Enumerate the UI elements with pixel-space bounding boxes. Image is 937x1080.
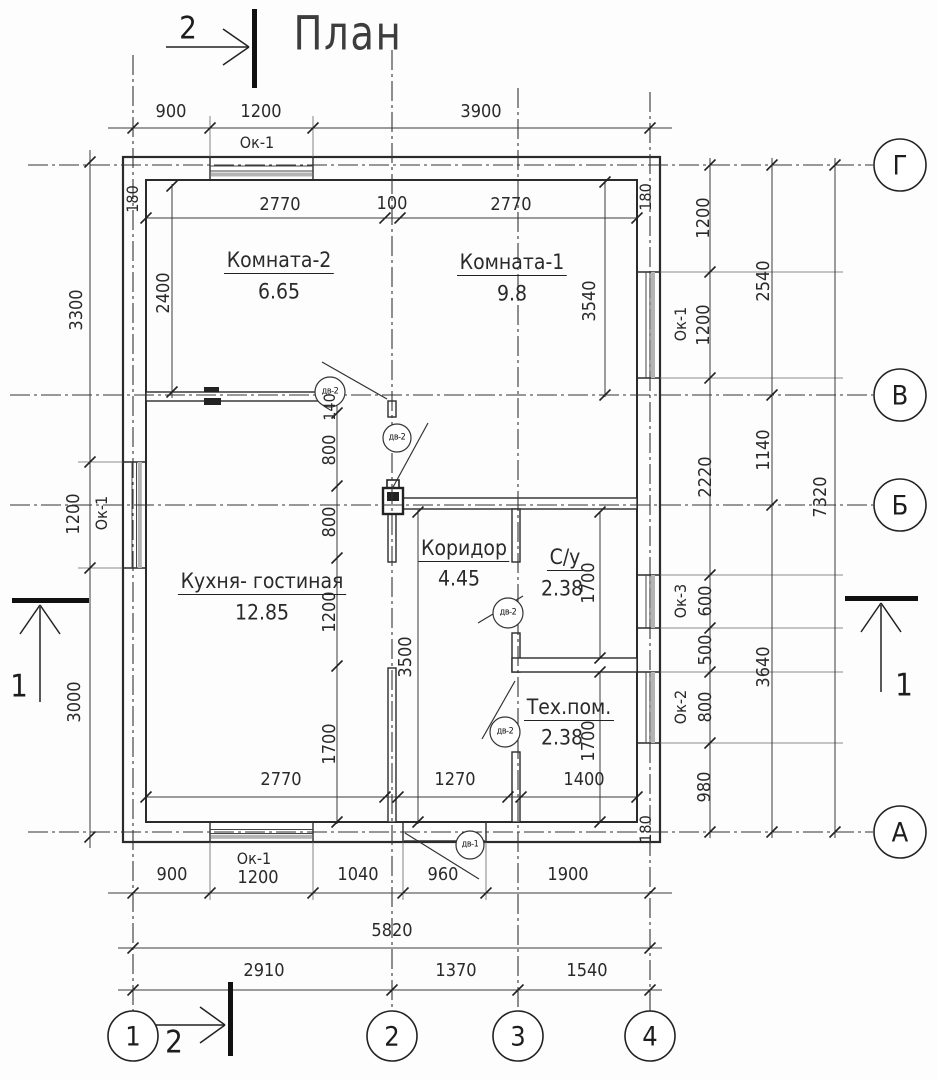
- dim-right-1140: 1140: [755, 429, 773, 470]
- axis-label-v: В: [892, 383, 909, 410]
- dim-left-1200: 1200: [65, 493, 83, 534]
- dim-wall-right-180: 180: [638, 183, 654, 210]
- dim-mid-1700: 1700: [321, 723, 339, 764]
- dim-wall-left-180: 180: [125, 185, 141, 212]
- dim-wall-bottomright-180: 180: [638, 815, 654, 842]
- dim-bot-1200: 1200: [237, 869, 278, 887]
- window-tag-bottom-ok1: Ок-1: [237, 851, 271, 867]
- dim-left-3000: 3000: [66, 681, 84, 722]
- window-tag-right-ok2: Ок-2: [673, 690, 689, 724]
- axis-label-a: А: [892, 820, 909, 847]
- dim-bot-1900: 1900: [547, 866, 588, 884]
- dim-wall-100: 100: [377, 195, 408, 213]
- dim-mid-140: 140: [322, 393, 338, 420]
- dim-right-1200a: 1200: [695, 197, 713, 238]
- dim-bot-900: 900: [157, 866, 188, 884]
- dim-bot-1040: 1040: [337, 866, 378, 884]
- dim-bot-960: 960: [428, 866, 459, 884]
- dim-inner-2770-komnata1: 2770: [490, 196, 531, 214]
- room-area-komnata1: 9.8: [497, 284, 527, 305]
- section-mark-bottom: 2: [165, 1028, 183, 1059]
- door-tag-dv2-b: дв-2: [389, 434, 406, 443]
- window-tag-right-ok1: Ок-1: [673, 307, 689, 341]
- axis-label-g: Г: [893, 153, 908, 180]
- dim-bot-1370: 1370: [435, 962, 476, 980]
- section-mark-right: 1: [895, 671, 913, 702]
- dim-top-900: 900: [156, 103, 187, 121]
- axis-label-1: 1: [125, 1024, 140, 1051]
- room-name-komnata2: Комната-2: [224, 250, 334, 274]
- door-swings: [322, 362, 523, 879]
- dim-right-800: 800: [697, 692, 715, 723]
- dim-inner-2400: 2400: [155, 272, 173, 313]
- room-name-teh: Тех.пом.: [524, 697, 614, 721]
- dim-left-3300: 3300: [68, 289, 86, 330]
- dim-bot-5820: 5820: [371, 922, 412, 940]
- room-name-koridor: Коридор: [418, 538, 509, 562]
- room-area-teh: 2.38: [541, 728, 583, 749]
- axis-label-2: 2: [384, 1024, 399, 1051]
- dim-inner-1270: 1270: [434, 771, 475, 789]
- dim-inner-2770-komnata2: 2770: [259, 196, 300, 214]
- dim-mid-800a: 800: [321, 435, 339, 466]
- section-mark-top: 2: [179, 14, 197, 45]
- room-area-kitchen: 12.85: [235, 603, 289, 624]
- window-tag-top-ok1: Ок-1: [240, 135, 274, 151]
- door-tag-circles: [315, 377, 523, 859]
- door-tag-dv2-c: дв-2: [500, 609, 517, 618]
- dim-inner-2770-kitchen: 2770: [260, 771, 301, 789]
- dim-right-980: 980: [696, 772, 714, 803]
- window-tag-left-ok1: Ок-1: [94, 496, 110, 530]
- dim-right-3640: 3640: [755, 646, 773, 687]
- dim-mid-800b: 800: [321, 507, 339, 538]
- room-area-komnata2: 6.65: [258, 282, 300, 303]
- dim-right-7320: 7320: [812, 476, 830, 517]
- dim-bot-2910: 2910: [243, 962, 284, 980]
- dim-komnata1-3540: 3540: [581, 280, 599, 321]
- dim-inner-1400: 1400: [563, 771, 604, 789]
- dim-bot-1540: 1540: [566, 962, 607, 980]
- axis-label-3: 3: [510, 1024, 525, 1051]
- dim-mid-1200: 1200: [321, 591, 339, 632]
- room-area-su: 2.38: [541, 579, 583, 600]
- drawing-title: План: [294, 11, 403, 58]
- axis-label-b: Б: [892, 493, 909, 520]
- section-mark-left: 1: [10, 672, 28, 703]
- dim-right-600: 600: [697, 586, 715, 617]
- dim-top-1200: 1200: [240, 103, 281, 121]
- dim-su-1700: 1700: [580, 562, 598, 603]
- door-tag-dv1: дв-1: [462, 841, 479, 850]
- room-name-komnata1: Комната-1: [457, 252, 567, 276]
- section-arrows: [12, 9, 918, 1056]
- dim-top-3900: 3900: [460, 103, 501, 121]
- floor-plan-sheet: План 2 2 1 1 1 2 3 4 Г В Б А Комната-2 6…: [0, 0, 937, 1080]
- door-tag-dv2-d: дв-2: [497, 728, 514, 737]
- dim-koridor-3500: 3500: [397, 636, 415, 677]
- dim-right-2220: 2220: [697, 456, 715, 497]
- window-tag-right-ok3: Ок-3: [673, 584, 689, 618]
- dim-right-2540: 2540: [755, 260, 773, 301]
- wall-junction-block: [383, 480, 403, 514]
- room-area-koridor: 4.45: [438, 569, 480, 590]
- axis-label-4: 4: [642, 1024, 657, 1051]
- dim-right-1200b: 1200: [695, 304, 713, 345]
- dim-right-500: 500: [697, 635, 715, 666]
- dim-teh-1700: 1700: [580, 720, 598, 761]
